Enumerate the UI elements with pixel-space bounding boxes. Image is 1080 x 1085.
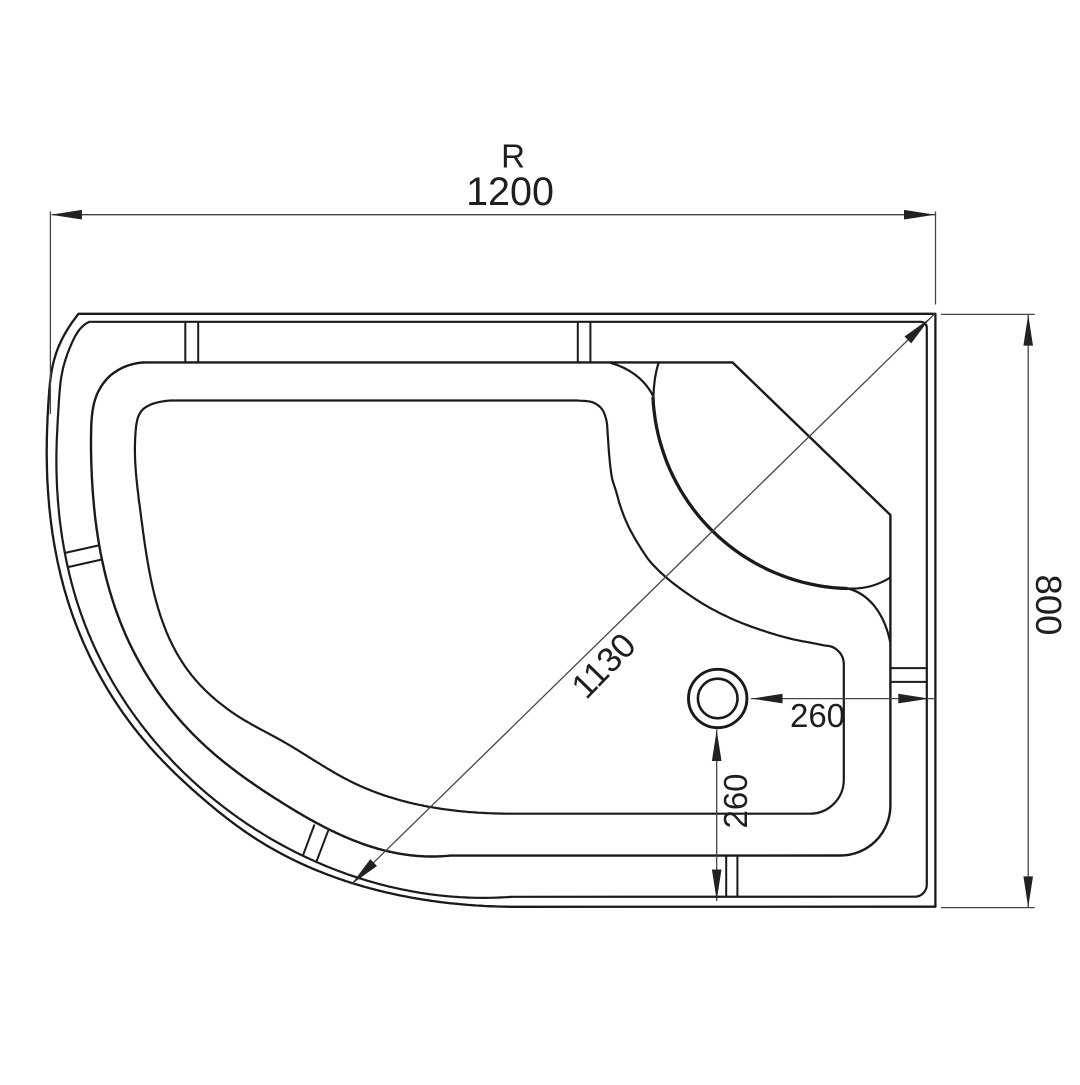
svg-text:260: 260 — [790, 697, 845, 734]
svg-text:260: 260 — [717, 773, 754, 828]
svg-text:1200: 1200 — [466, 170, 554, 214]
svg-text:800: 800 — [1028, 575, 1069, 636]
